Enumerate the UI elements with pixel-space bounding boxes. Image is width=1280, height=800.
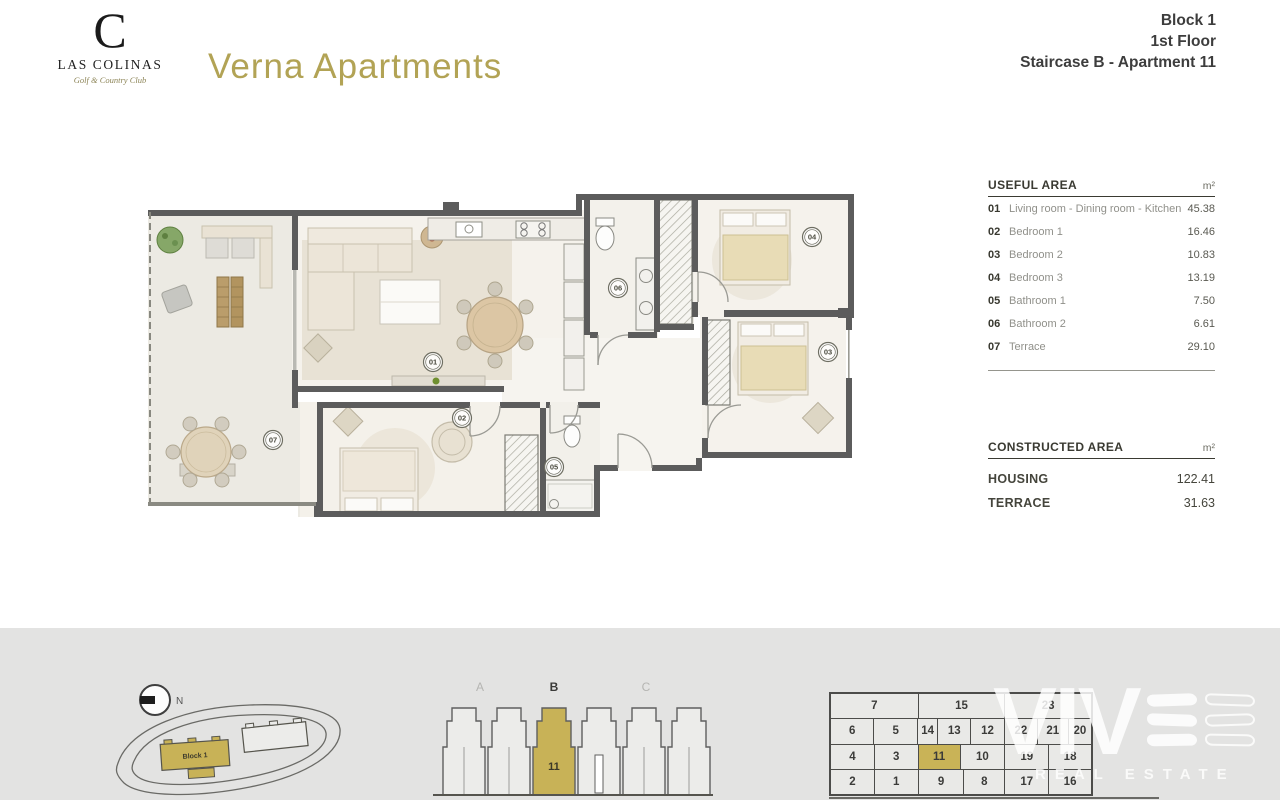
logo-name: LAS COLINAS — [42, 57, 178, 73]
constructed-area-header: CONSTRUCTED AREA m² — [988, 440, 1215, 459]
watermark-e-outline-icon — [1205, 686, 1255, 754]
grid-cell: 13 — [938, 719, 971, 743]
grid-cell: 1 — [875, 770, 919, 794]
svg-text:03: 03 — [824, 348, 832, 357]
svg-text:02: 02 — [458, 414, 466, 423]
staircase-line: Staircase B - Apartment 11 — [1020, 52, 1216, 73]
svg-text:B: B — [550, 680, 559, 694]
room-label-05: 05 — [545, 458, 564, 477]
living-room-furniture — [302, 226, 533, 386]
grid-cell: 2 — [831, 770, 875, 794]
table-row: HOUSING122.41 — [988, 467, 1215, 491]
floor-line: 1st Floor — [1020, 31, 1216, 52]
room-label-01: 01 — [424, 353, 443, 372]
table-row: 01Living room - Dining room - Kitchen45.… — [988, 203, 1215, 226]
grid-cell: 3 — [875, 745, 919, 769]
site-block1-building: Block 1 — [160, 736, 231, 781]
constructed-area-table: CONSTRUCTED AREA m² HOUSING122.41 TERRAC… — [988, 440, 1215, 515]
table-row: 07Terrace29.10 — [988, 341, 1215, 364]
vive-watermark: VIV REAL ESTATE — [993, 680, 1280, 800]
site-block2-building — [242, 718, 309, 753]
grid-cell: 14 — [918, 719, 938, 743]
useful-area-table: USEFUL AREA m² 01Living room - Dining ro… — [988, 178, 1215, 371]
page-title: Verna Apartments — [208, 47, 502, 87]
svg-text:07: 07 — [269, 436, 277, 445]
room-label-07: 07 — [264, 431, 283, 450]
block-line: Block 1 — [1020, 10, 1216, 31]
constructed-area-title: CONSTRUCTED AREA — [988, 440, 1123, 454]
svg-text:06: 06 — [614, 284, 622, 293]
wardrobe-hatched — [658, 200, 692, 324]
table-row: 04Bedroom 313.19 — [988, 272, 1215, 295]
grid-cell: 6 — [831, 719, 874, 743]
grid-cell: 4 — [831, 745, 875, 769]
watermark-letters: VIV — [993, 680, 1139, 764]
block-info: Block 1 1st Floor Staircase B - Apartmen… — [1020, 10, 1216, 73]
svg-text:04: 04 — [808, 233, 817, 242]
watermark-subtext: REAL ESTATE — [1035, 766, 1236, 783]
room-label-06: 06 — [609, 279, 628, 298]
grid-cell: 5 — [874, 719, 917, 743]
table-row: 02Bedroom 116.46 — [988, 226, 1215, 249]
north-compass: N — [140, 685, 183, 715]
floor-plan: 01 02 03 04 05 06 07 — [140, 180, 880, 545]
grid-cell: 9 — [919, 770, 965, 794]
room-label-04: 04 — [803, 228, 822, 247]
svg-text:N: N — [176, 696, 183, 707]
staircase-letters: A B C — [476, 680, 651, 694]
watermark-e-icon — [1147, 686, 1197, 754]
svg-text:05: 05 — [550, 463, 558, 472]
svg-text:C: C — [642, 680, 651, 694]
table-row: TERRACE31.63 — [988, 491, 1215, 515]
useful-area-rows: 01Living room - Dining room - Kitchen45.… — [988, 197, 1215, 371]
table-row: 03Bedroom 210.83 — [988, 249, 1215, 272]
floor-plan-sheet: C LAS COLINAS Golf & Country Club Verna … — [0, 0, 1280, 800]
building-elevation: A B C 11 — [428, 675, 718, 800]
table-row: 06Bathroom 26.61 — [988, 318, 1215, 341]
logo-monogram: C — [42, 4, 178, 56]
room-label-02: 02 — [453, 409, 472, 428]
useful-area-title: USEFUL AREA — [988, 178, 1077, 192]
site-plan: N Block 1 — [100, 655, 350, 800]
svg-text:01: 01 — [429, 358, 437, 367]
svg-text:A: A — [476, 680, 484, 694]
table-row: 05Bathroom 17.50 — [988, 295, 1215, 318]
elevation-towers — [443, 708, 710, 795]
elevation-unit-number: 11 — [548, 761, 560, 773]
grid-cell-highlighted: 11 — [919, 745, 961, 769]
constructed-area-unit: m² — [1203, 442, 1215, 454]
grid-cell: 7 — [831, 694, 919, 718]
las-colinas-logo: C LAS COLINAS Golf & Country Club — [42, 4, 178, 85]
logo-tagline: Golf & Country Club — [42, 75, 178, 85]
useful-area-unit: m² — [1203, 180, 1215, 192]
room-label-03: 03 — [819, 343, 838, 362]
useful-area-header: USEFUL AREA m² — [988, 178, 1215, 197]
